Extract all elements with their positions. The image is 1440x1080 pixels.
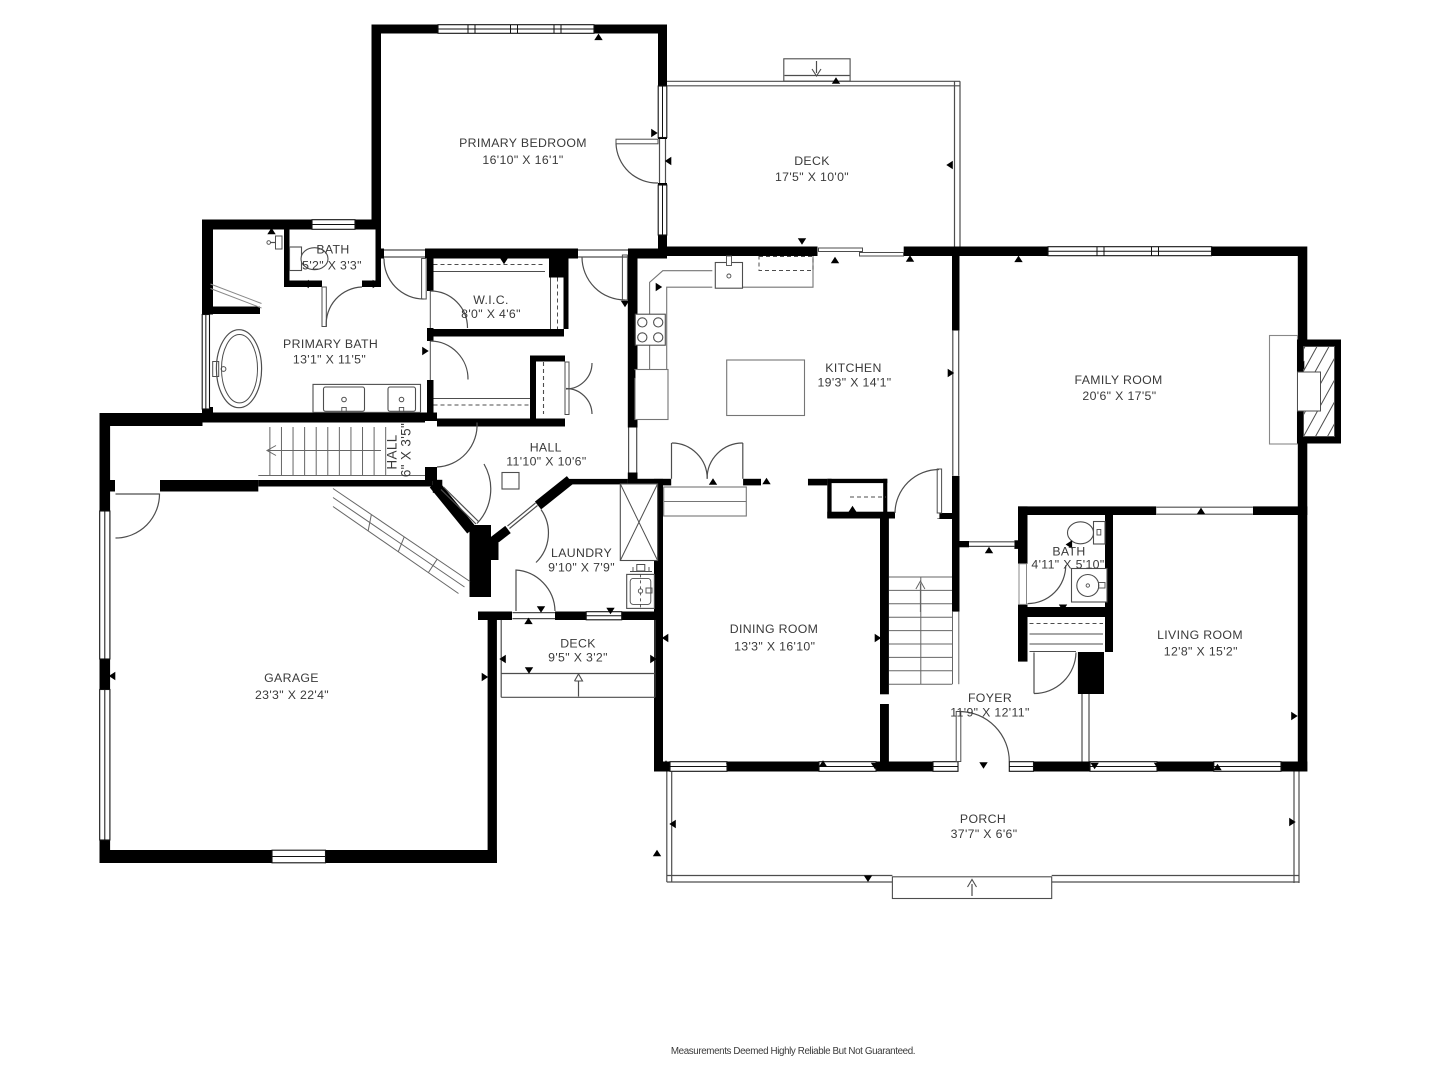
svg-text:FOYER: FOYER — [968, 691, 1012, 705]
svg-text:11'10" X 10'6": 11'10" X 10'6" — [506, 455, 586, 469]
svg-text:DECK: DECK — [794, 154, 830, 168]
svg-text:Measurements Deemed Highly Rel: Measurements Deemed Highly Reliable But … — [671, 1046, 915, 1057]
svg-text:GARAGE: GARAGE — [264, 671, 319, 685]
svg-text:LAUNDRY: LAUNDRY — [551, 546, 612, 560]
svg-text:13'3" X 16'10": 13'3" X 16'10" — [734, 640, 815, 654]
svg-text:BATH: BATH — [1052, 545, 1085, 559]
svg-text:PORCH: PORCH — [960, 812, 1006, 826]
svg-text:17'5" X 10'0": 17'5" X 10'0" — [775, 170, 849, 184]
svg-text:FAMILY ROOM: FAMILY ROOM — [1075, 373, 1163, 387]
svg-text:23'3" X 22'4": 23'3" X 22'4" — [255, 688, 329, 702]
svg-text:HALL: HALL — [385, 434, 400, 469]
svg-text:PRIMARY BATH: PRIMARY BATH — [283, 337, 378, 351]
svg-text:9'10" X 7'9": 9'10" X 7'9" — [548, 561, 615, 575]
svg-text:PRIMARY BEDROOM: PRIMARY BEDROOM — [459, 136, 587, 150]
svg-text:BATH: BATH — [316, 243, 349, 257]
svg-text:KITCHEN: KITCHEN — [825, 361, 881, 375]
svg-text:DECK: DECK — [560, 637, 596, 651]
svg-text:11'9" X 12'11": 11'9" X 12'11" — [950, 706, 1029, 720]
svg-text:LIVING ROOM: LIVING ROOM — [1157, 628, 1243, 642]
svg-text:5'2" X 3'3": 5'2" X 3'3" — [302, 259, 362, 273]
svg-text:8'0" X 4'6": 8'0" X 4'6" — [461, 307, 521, 321]
svg-text:16'10" X 16'1": 16'10" X 16'1" — [482, 153, 563, 167]
svg-text:4'11" X 5'10": 4'11" X 5'10" — [1031, 558, 1104, 572]
svg-text:19'3" X 14'1": 19'3" X 14'1" — [817, 376, 891, 390]
svg-text:6" X 3'5": 6" X 3'5" — [399, 423, 414, 477]
svg-text:DINING ROOM: DINING ROOM — [730, 622, 819, 636]
svg-text:9'5" X 3'2": 9'5" X 3'2" — [548, 651, 608, 665]
svg-text:HALL: HALL — [530, 441, 562, 455]
svg-text:13'1" X 11'5": 13'1" X 11'5" — [293, 353, 366, 367]
svg-text:20'6" X 17'5": 20'6" X 17'5" — [1082, 389, 1156, 403]
svg-text:12'8" X 15'2": 12'8" X 15'2" — [1164, 645, 1238, 659]
svg-text:37'7" X 6'6": 37'7" X 6'6" — [951, 827, 1018, 841]
svg-text:W.I.C.: W.I.C. — [473, 293, 509, 307]
